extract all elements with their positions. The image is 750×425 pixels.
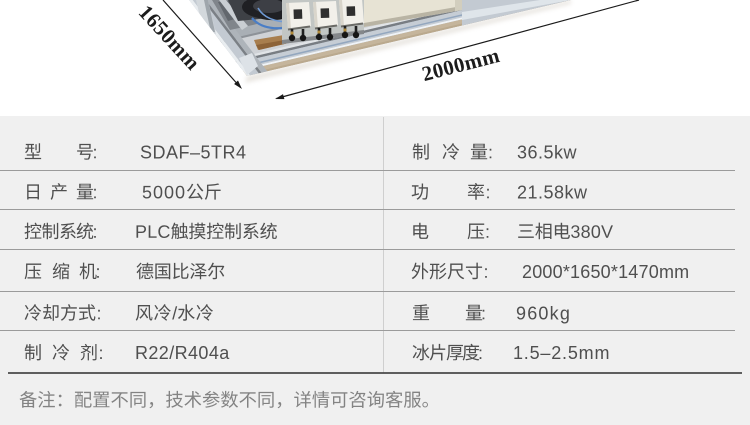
svg-text:SDAF–5TR4: SDAF–5TR4 <box>140 142 247 162</box>
svg-text:21.58kw: 21.58kw <box>517 182 588 202</box>
svg-text:36.5kw: 36.5kw <box>517 142 578 162</box>
svg-text:960kg: 960kg <box>516 303 571 323</box>
svg-text:R22/R404a: R22/R404a <box>135 343 230 363</box>
svg-text:1.5–2.5mm: 1.5–2.5mm <box>513 343 610 363</box>
svg-text:2000*1650*1470mm: 2000*1650*1470mm <box>522 262 689 282</box>
